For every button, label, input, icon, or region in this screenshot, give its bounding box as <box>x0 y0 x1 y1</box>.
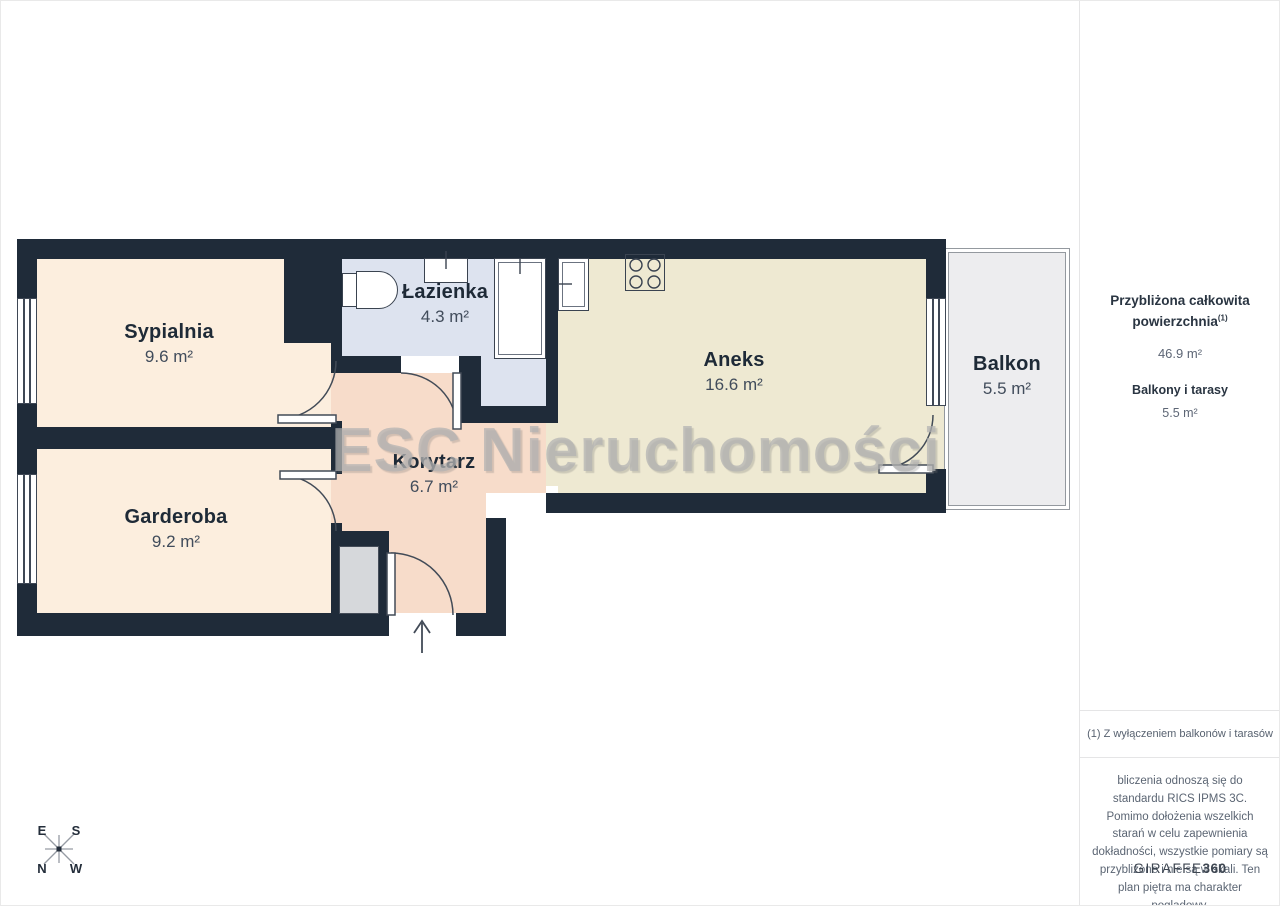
room-label-sypialnia: Sypialnia 9.6 m² <box>59 321 279 367</box>
kitchen-sink-icon <box>558 258 589 311</box>
wall-segment <box>546 239 558 423</box>
room-name: Aneks <box>624 349 844 372</box>
wall-pillar <box>284 239 342 343</box>
room-area: 9.6 m² <box>59 347 279 367</box>
wall-segment <box>17 613 389 636</box>
compass-letter: E <box>38 823 47 838</box>
room-area: 9.2 m² <box>66 532 286 552</box>
window-icon <box>17 474 37 584</box>
brand-name: GIRAFFE <box>1133 861 1202 876</box>
total-area-label: Przybliżona całkowita powierzchnia(1) <box>1080 291 1280 333</box>
wall-segment <box>486 518 506 636</box>
wall-segment <box>331 356 401 373</box>
footnote-text: (1) Z wyłączeniem balkonów i tarasów <box>1080 710 1280 758</box>
room-label-lazienka: Łazienka 4.3 m² <box>335 281 555 327</box>
room-name: Balkon <box>897 353 1117 376</box>
wall-segment <box>546 493 946 513</box>
balconies-value: 5.5 m² <box>1080 406 1280 420</box>
brand-number: 360 <box>1202 861 1226 876</box>
window-icon <box>17 298 37 404</box>
bathroom-floor-lower <box>481 356 546 406</box>
entry-arrow-icon <box>414 621 430 653</box>
room-label-balkon: Balkon 5.5 m² <box>897 353 1117 399</box>
floor-plan-page: Sypialnia 9.6 m² Łazienka 4.3 m² Aneks 1… <box>0 0 1280 906</box>
room-name: Garderoba <box>66 506 286 529</box>
wall-segment <box>926 239 946 299</box>
bathroom-sink-icon <box>424 258 468 283</box>
disclaimer-text: bliczenia odnoszą się do standardu RICS … <box>1092 773 1268 906</box>
giraffe360-logo: GIRAFFE360 <box>1080 861 1280 876</box>
room-area: 16.6 m² <box>624 375 844 395</box>
room-name: Sypialnia <box>59 321 279 344</box>
utility-closet-icon <box>339 546 379 614</box>
wall-segment <box>17 239 946 259</box>
compass-letter: W <box>70 861 83 876</box>
room-name: Łazienka <box>335 281 555 304</box>
compass-icon: E S N W <box>19 815 99 885</box>
total-area-label-line2: powierzchnia <box>1132 314 1218 329</box>
stove-icon <box>625 254 665 291</box>
footnote-marker: (1) <box>1218 313 1228 322</box>
compass-letter: S <box>72 823 81 838</box>
total-area-label-line1: Przybliżona całkowita <box>1110 293 1250 308</box>
wall-segment <box>378 531 389 615</box>
room-label-aneks: Aneks 16.6 m² <box>624 349 844 395</box>
room-area: 4.3 m² <box>335 307 555 327</box>
info-sidebar: Przybliżona całkowita powierzchnia(1) 46… <box>1079 1 1280 906</box>
room-area: 5.5 m² <box>897 379 1117 399</box>
room-label-garderoba: Garderoba 9.2 m² <box>66 506 286 552</box>
compass-letter: N <box>37 861 46 876</box>
watermark-text: ESC Nieruchomości <box>251 415 1021 486</box>
